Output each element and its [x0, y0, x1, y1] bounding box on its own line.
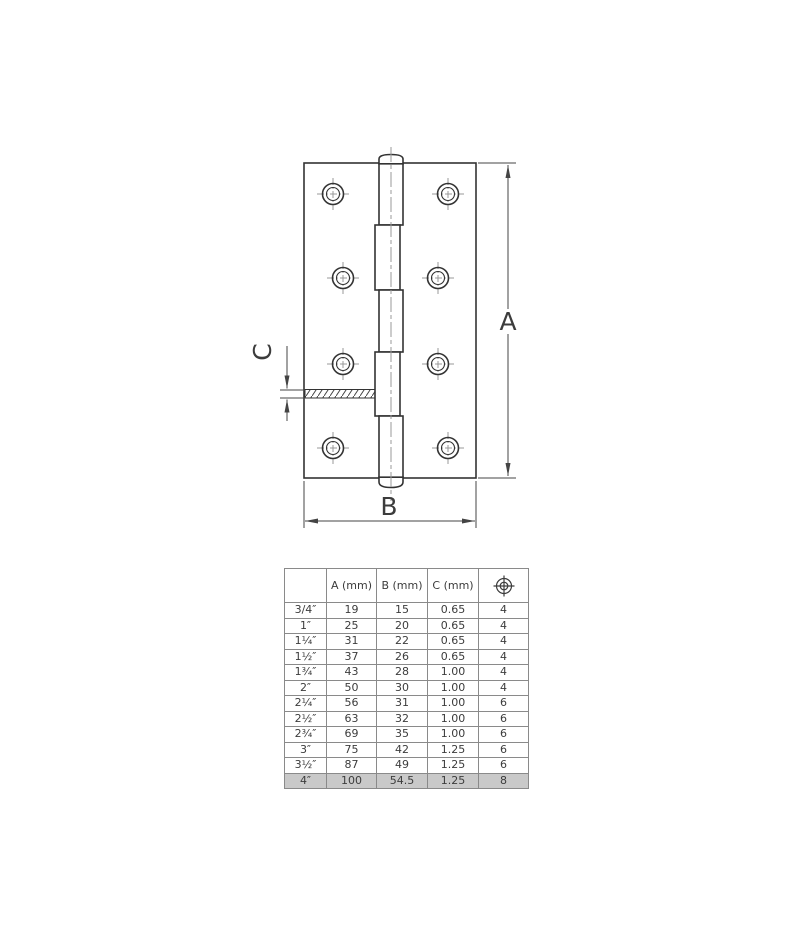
cell-size: 1¾″	[285, 665, 327, 681]
col-header-b: B (mm)	[377, 569, 428, 603]
cell-size: 3/4″	[285, 603, 327, 619]
table-row: 3/4″ 19 15 0.65 4	[285, 603, 529, 619]
cell-b: 30	[377, 680, 428, 696]
table-row: 2¾″ 69 35 1.00 6	[285, 727, 529, 743]
cell-screws: 4	[479, 603, 529, 619]
cell-c: 1.25	[428, 742, 479, 758]
cell-screws: 6	[479, 727, 529, 743]
table-row: 1½″ 37 26 0.65 4	[285, 649, 529, 665]
cell-size: 2¼″	[285, 696, 327, 712]
cell-a: 69	[327, 727, 377, 743]
cell-screws: 4	[479, 618, 529, 634]
table-row: 2¼″ 56 31 1.00 6	[285, 696, 529, 712]
cell-b: 31	[377, 696, 428, 712]
cell-c: 1.00	[428, 711, 479, 727]
table-row-highlighted: 4″ 100 54.5 1.25 8	[285, 773, 529, 789]
cell-screws: 6	[479, 696, 529, 712]
cell-screws: 4	[479, 680, 529, 696]
table-row: 3½″ 87 49 1.25 6	[285, 758, 529, 774]
cell-a: 31	[327, 634, 377, 650]
col-header-size	[285, 569, 327, 603]
col-header-c: C (mm)	[428, 569, 479, 603]
cell-a: 25	[327, 618, 377, 634]
cell-c: 0.65	[428, 618, 479, 634]
table-row: 1¾″ 43 28 1.00 4	[285, 665, 529, 681]
cell-b: 28	[377, 665, 428, 681]
cell-screws: 4	[479, 665, 529, 681]
cell-b: 20	[377, 618, 428, 634]
barrel-knuckle	[375, 225, 400, 290]
cell-b: 26	[377, 649, 428, 665]
hinge-technical-drawing: A B C	[0, 0, 800, 560]
cell-a: 43	[327, 665, 377, 681]
dimension-c	[280, 346, 305, 421]
cell-c: 0.65	[428, 603, 479, 619]
cell-size: 2½″	[285, 711, 327, 727]
section-hatch-strip	[305, 390, 378, 399]
cell-size: 1½″	[285, 649, 327, 665]
dim-c-label: C	[248, 343, 277, 360]
cell-c: 0.65	[428, 634, 479, 650]
cell-b: 15	[377, 603, 428, 619]
table-row: 1¼″ 31 22 0.65 4	[285, 634, 529, 650]
cell-a: 50	[327, 680, 377, 696]
cell-screws: 4	[479, 634, 529, 650]
cell-a: 56	[327, 696, 377, 712]
cell-size: 2″	[285, 680, 327, 696]
cell-screws: 8	[479, 773, 529, 789]
cell-size: 3″	[285, 742, 327, 758]
col-header-screws	[479, 569, 529, 603]
cell-screws: 4	[479, 649, 529, 665]
cell-size: 1¼″	[285, 634, 327, 650]
cell-size: 4″	[285, 773, 327, 789]
cell-c: 0.65	[428, 649, 479, 665]
cell-c: 1.25	[428, 773, 479, 789]
cell-a: 100	[327, 773, 377, 789]
dimensions-table: A (mm) B (mm) C (mm) 3/4″	[284, 568, 529, 789]
cell-b: 42	[377, 742, 428, 758]
cell-size: 2¾″	[285, 727, 327, 743]
cell-a: 87	[327, 758, 377, 774]
table-row: 2½″ 63 32 1.00 6	[285, 711, 529, 727]
cell-screws: 6	[479, 758, 529, 774]
col-header-a: A (mm)	[327, 569, 377, 603]
barrel-knuckle	[375, 352, 400, 416]
page: A B C A (mm) B (mm)	[0, 0, 800, 945]
cell-screws: 6	[479, 711, 529, 727]
cell-screws: 6	[479, 742, 529, 758]
cell-b: 49	[377, 758, 428, 774]
cell-c: 1.00	[428, 665, 479, 681]
cell-b: 35	[377, 727, 428, 743]
table-row: 3″ 75 42 1.25 6	[285, 742, 529, 758]
table-row: 1″ 25 20 0.65 4	[285, 618, 529, 634]
cell-b: 32	[377, 711, 428, 727]
cell-c: 1.00	[428, 727, 479, 743]
cell-c: 1.00	[428, 680, 479, 696]
cell-c: 1.25	[428, 758, 479, 774]
cell-a: 63	[327, 711, 377, 727]
dim-b-label: B	[380, 492, 397, 521]
cell-b: 22	[377, 634, 428, 650]
dim-a-label: A	[499, 307, 516, 336]
cell-a: 37	[327, 649, 377, 665]
dimensions-table-container: A (mm) B (mm) C (mm) 3/4″	[284, 568, 529, 789]
cell-b: 54.5	[377, 773, 428, 789]
table-header-row: A (mm) B (mm) C (mm)	[285, 569, 529, 603]
cell-a: 75	[327, 742, 377, 758]
cell-size: 1″	[285, 618, 327, 634]
table-row: 2″ 50 30 1.00 4	[285, 680, 529, 696]
cell-c: 1.00	[428, 696, 479, 712]
cell-size: 3½″	[285, 758, 327, 774]
screw-position-icon	[492, 574, 516, 598]
cell-a: 19	[327, 603, 377, 619]
